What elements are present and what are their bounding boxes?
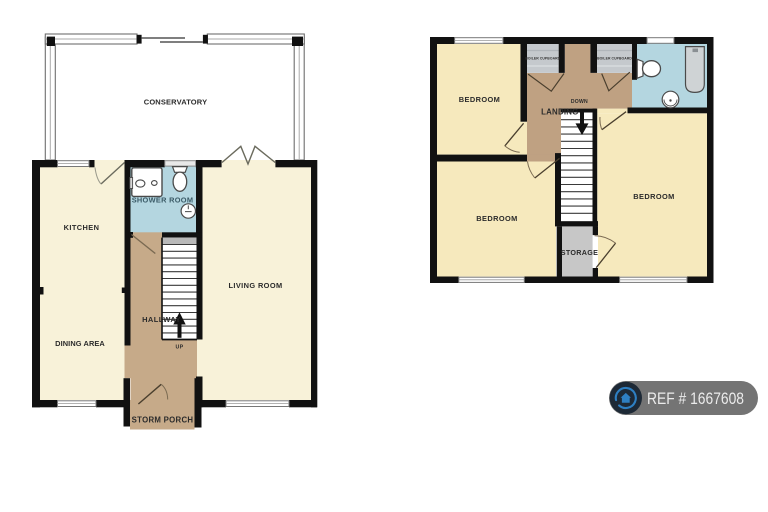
svg-text:LANDING: LANDING — [541, 107, 578, 116]
svg-text:CONSERVATORY: CONSERVATORY — [144, 98, 207, 107]
svg-text:UP: UP — [176, 345, 184, 351]
svg-text:HALLWAY: HALLWAY — [142, 315, 181, 324]
svg-text:STORAGE: STORAGE — [561, 248, 599, 257]
svg-text:DOWN: DOWN — [571, 99, 588, 105]
svg-text:BOILER CUPBOARD: BOILER CUPBOARD — [525, 57, 560, 61]
svg-text:STORM PORCH: STORM PORCH — [132, 416, 194, 425]
svg-text:DINING AREA: DINING AREA — [55, 339, 105, 348]
svg-text:BEDROOM: BEDROOM — [459, 95, 500, 104]
svg-text:KITCHEN: KITCHEN — [64, 223, 100, 232]
svg-text:LIVING ROOM: LIVING ROOM — [228, 281, 282, 290]
svg-text:REF # 1667608: REF # 1667608 — [647, 389, 744, 408]
svg-text:BEDROOM: BEDROOM — [476, 214, 517, 223]
svg-text:SHOWER ROOM: SHOWER ROOM — [132, 195, 194, 204]
svg-text:BEDROOM: BEDROOM — [633, 192, 674, 201]
svg-text:BOILER CUPBOARD: BOILER CUPBOARD — [597, 57, 632, 61]
